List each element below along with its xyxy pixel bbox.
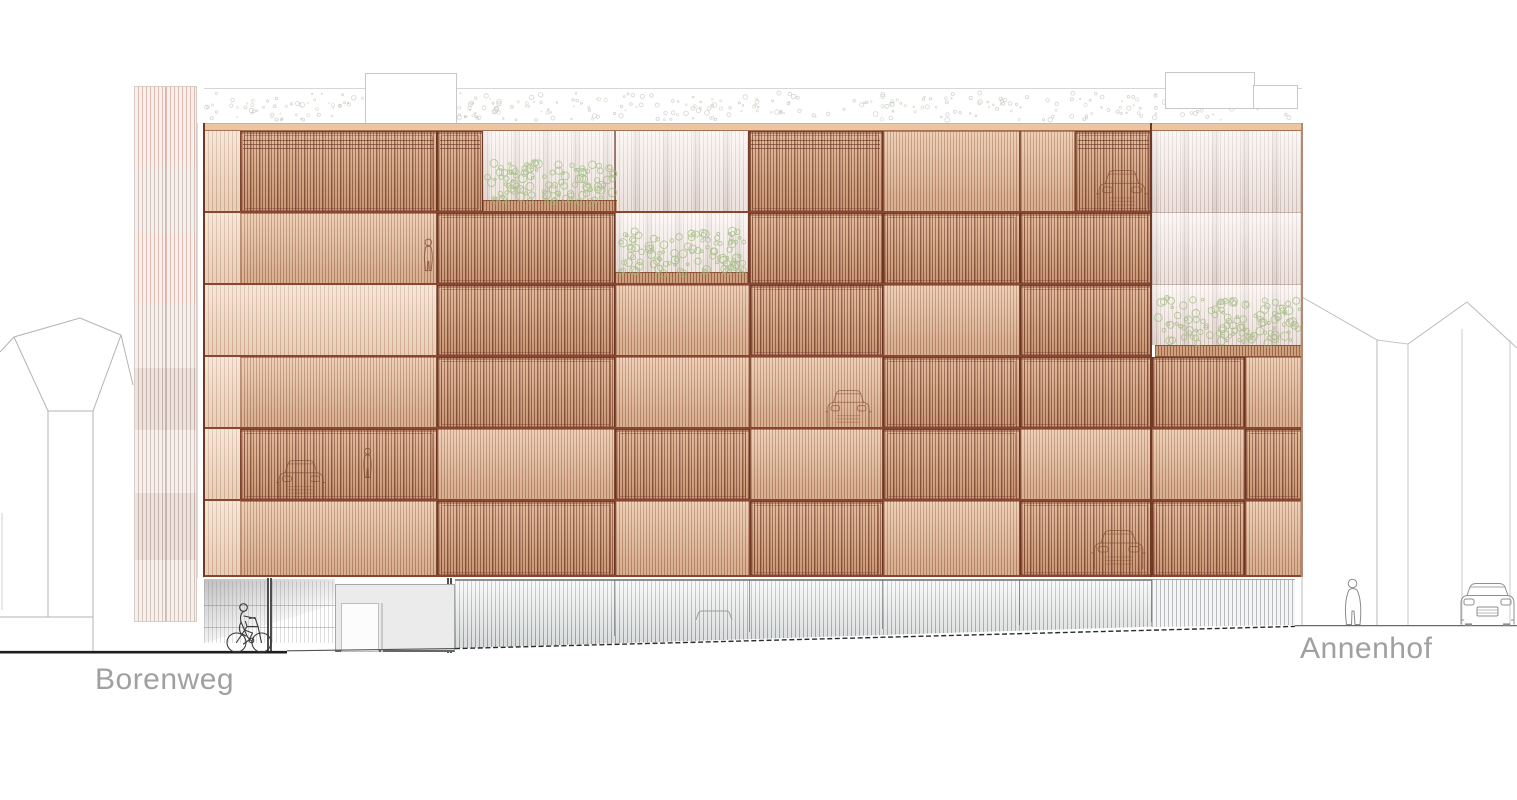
street-label-borenweg: Borenweg bbox=[95, 663, 234, 697]
wing-panel bbox=[1152, 213, 1302, 285]
rooftop-box bbox=[1253, 85, 1298, 109]
facade-panel bbox=[240, 501, 437, 577]
floor-line-wing bbox=[1152, 212, 1302, 213]
facade-panel bbox=[437, 501, 615, 577]
facade-panel bbox=[204, 501, 240, 577]
facade-panel bbox=[240, 131, 437, 213]
rooftop-box bbox=[365, 73, 457, 124]
facade-panel bbox=[1075, 131, 1152, 213]
floor-line bbox=[204, 355, 1152, 357]
facade-panel bbox=[437, 213, 615, 285]
facade-edge bbox=[203, 123, 205, 577]
wing-panel bbox=[1245, 501, 1302, 577]
facade-panel bbox=[883, 131, 1020, 213]
facade-panel bbox=[1020, 501, 1152, 577]
floor-line bbox=[204, 427, 1152, 429]
entrance-door bbox=[341, 603, 379, 652]
facade-panel bbox=[750, 501, 883, 577]
facade-panel bbox=[883, 429, 1020, 501]
base-divider bbox=[614, 580, 615, 636]
facade-panel bbox=[204, 357, 240, 429]
facade-panel bbox=[1020, 285, 1152, 357]
wing-panel bbox=[1245, 357, 1302, 429]
facade-panel bbox=[240, 213, 437, 285]
facade-panel bbox=[204, 429, 240, 501]
wing-panel bbox=[1152, 285, 1302, 345]
facade-panel bbox=[240, 357, 437, 429]
street-label-annenhof: Annenhof bbox=[1300, 632, 1432, 666]
bay-divider bbox=[882, 131, 884, 577]
wing-panel bbox=[1152, 501, 1245, 577]
facade-panel bbox=[240, 429, 437, 501]
facade-edge bbox=[1150, 123, 1152, 577]
facade-panel bbox=[204, 131, 240, 213]
floor-line bbox=[204, 283, 1152, 285]
floor-line bbox=[204, 211, 1152, 213]
facade-panel bbox=[615, 429, 750, 501]
groundfloor-screen-wing bbox=[1152, 579, 1295, 627]
base-divider bbox=[1019, 580, 1020, 625]
wing-planter bbox=[1155, 345, 1302, 357]
floor-line-wing bbox=[1152, 499, 1302, 501]
facade-panel bbox=[883, 213, 1020, 285]
facade-panel bbox=[883, 285, 1020, 357]
facade-panel bbox=[1020, 429, 1152, 501]
facade-panel bbox=[748, 213, 883, 285]
facade-panel bbox=[750, 357, 883, 429]
facade-panel bbox=[1020, 213, 1152, 285]
elevation-drawing: Borenweg Annenhof bbox=[0, 0, 1517, 800]
facade-panel bbox=[748, 131, 883, 213]
facade-panel bbox=[883, 501, 1020, 577]
facade-panel bbox=[437, 131, 483, 213]
bay-divider bbox=[1019, 131, 1021, 577]
column bbox=[267, 578, 272, 652]
facade-panel bbox=[883, 357, 1020, 429]
tower-outline bbox=[134, 86, 197, 622]
base-divider bbox=[1151, 580, 1152, 622]
floor-line-wing bbox=[1152, 284, 1302, 285]
facade-panel bbox=[204, 285, 240, 357]
wing-panel bbox=[1152, 429, 1245, 501]
facade-panel bbox=[750, 285, 883, 357]
facade-panel bbox=[437, 285, 615, 357]
facade-panel bbox=[437, 429, 615, 501]
facade-panel bbox=[750, 429, 883, 501]
facade-panel bbox=[615, 357, 750, 429]
facade-panel bbox=[1020, 131, 1075, 213]
facade-panel bbox=[437, 357, 615, 429]
facade-panel bbox=[615, 501, 750, 577]
base-divider bbox=[749, 580, 750, 632]
floor-line-wing bbox=[1152, 427, 1302, 429]
floor-line bbox=[204, 499, 1152, 501]
facade-panel bbox=[240, 285, 437, 357]
wing-edge bbox=[1301, 123, 1303, 577]
base-divider bbox=[882, 580, 883, 629]
entrance-door-divider bbox=[381, 603, 383, 652]
bay-divider bbox=[1244, 357, 1246, 577]
facade-panel bbox=[204, 213, 240, 285]
bay-divider bbox=[436, 131, 438, 577]
wing-panel bbox=[1152, 131, 1302, 213]
groundfloor-screen bbox=[455, 579, 1152, 649]
facade-parapet bbox=[204, 123, 1302, 131]
wing-panel bbox=[1245, 429, 1302, 501]
rooftop-box bbox=[1165, 72, 1255, 109]
facade-panel bbox=[615, 285, 750, 357]
facade-bottom-line bbox=[204, 575, 1302, 577]
facade-panel bbox=[1020, 357, 1152, 429]
bay-divider bbox=[749, 131, 751, 577]
bay-divider bbox=[614, 131, 616, 577]
wing-panel bbox=[1152, 357, 1245, 429]
